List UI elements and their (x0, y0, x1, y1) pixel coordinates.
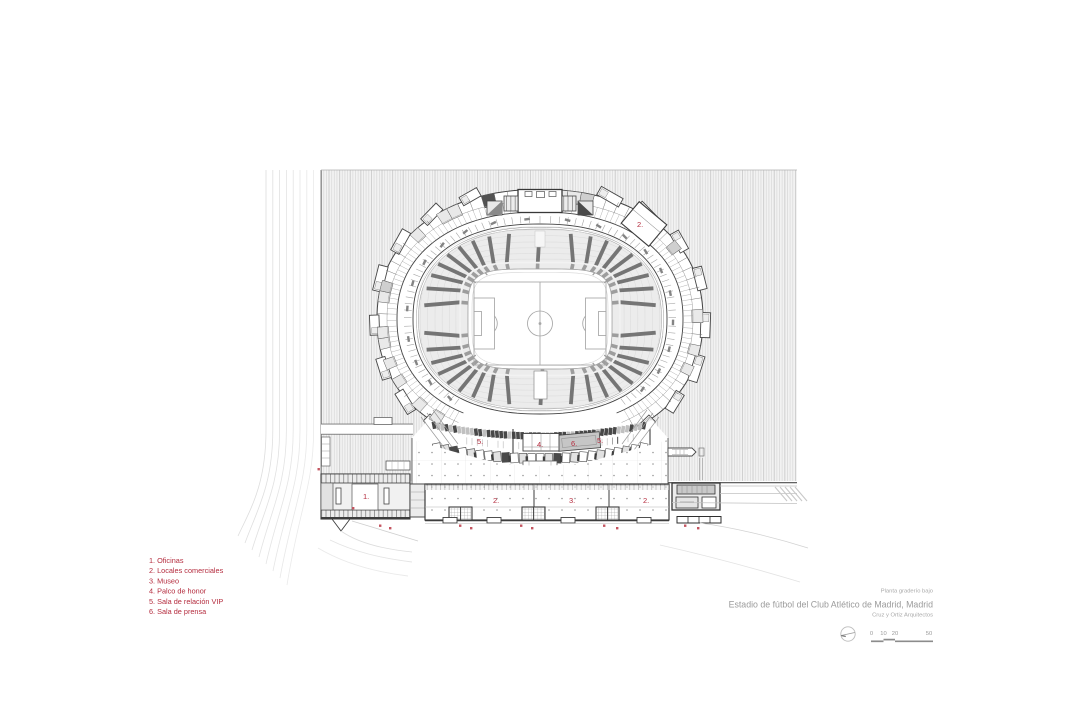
svg-text:Estadio de fútbol del Club Atl: Estadio de fútbol del Club Atlético de M… (729, 600, 934, 610)
svg-text:3. Museo: 3. Museo (149, 576, 179, 585)
svg-text:Planta graderío bajo: Planta graderío bajo (881, 589, 933, 595)
svg-text:4.: 4. (537, 440, 543, 449)
svg-text:2.: 2. (637, 220, 643, 229)
svg-text:1.: 1. (363, 492, 369, 501)
svg-text:20: 20 (892, 631, 898, 637)
svg-text:6. Sala de prensa: 6. Sala de prensa (149, 607, 207, 616)
svg-text:1. Oficinas: 1. Oficinas (149, 556, 184, 565)
svg-text:50: 50 (926, 631, 932, 637)
svg-text:5.: 5. (597, 436, 603, 445)
svg-text:2. Locales comerciales: 2. Locales comerciales (149, 566, 224, 575)
svg-text:6.: 6. (571, 439, 577, 448)
svg-text:2.: 2. (643, 496, 649, 505)
svg-text:2.: 2. (493, 496, 499, 505)
svg-text:10: 10 (880, 631, 886, 637)
svg-text:0: 0 (870, 631, 873, 637)
svg-text:5. Sala de relación VIP: 5. Sala de relación VIP (149, 597, 223, 606)
svg-text:4. Palco de honor: 4. Palco de honor (149, 587, 207, 596)
svg-text:5.: 5. (477, 437, 483, 446)
svg-text:Cruz y Ortiz Arquitectos: Cruz y Ortiz Arquitectos (872, 613, 933, 619)
svg-text:3.: 3. (569, 496, 575, 505)
